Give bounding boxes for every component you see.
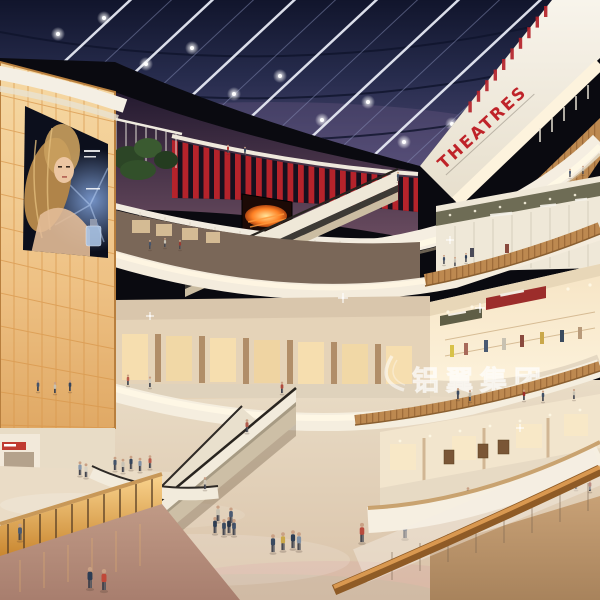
billboard-model-face xyxy=(54,157,74,183)
figure-shadow xyxy=(83,477,88,479)
figure-shadow xyxy=(147,468,152,470)
figure-shadow xyxy=(137,471,142,473)
figure-shadow xyxy=(221,535,227,538)
figure-shadow xyxy=(120,472,125,474)
level2-left-corridor xyxy=(115,296,430,400)
figure-shadow xyxy=(226,533,232,536)
figure-shadow xyxy=(148,388,152,390)
figure-shadow xyxy=(163,248,167,249)
figure-shadow xyxy=(289,548,296,551)
figure-shadow xyxy=(86,588,94,591)
small-shop xyxy=(0,434,40,470)
figure-shadow xyxy=(581,175,584,176)
figure-shadow xyxy=(396,182,400,183)
figure-shadow xyxy=(279,550,286,553)
mall-atrium-rendering: THEATRES xyxy=(0,0,600,600)
figure-shadow xyxy=(126,386,130,388)
figure-shadow xyxy=(468,402,472,404)
figure-shadow xyxy=(68,392,72,394)
figure-shadow xyxy=(203,490,208,492)
figure-shadow xyxy=(178,250,182,251)
figure-shadow xyxy=(53,394,57,396)
figure-shadow xyxy=(100,590,108,593)
figure-shadow xyxy=(36,392,40,394)
figure-shadow xyxy=(243,156,246,157)
figure-shadow xyxy=(17,540,23,543)
figure-shadow xyxy=(77,475,82,477)
figure-shadow xyxy=(280,394,285,396)
figure-shadow xyxy=(148,250,152,251)
figure-shadow xyxy=(442,265,446,266)
figure-shadow xyxy=(568,178,571,179)
figure-shadow xyxy=(128,469,133,471)
figure-shadow xyxy=(572,400,576,402)
figure-shadow xyxy=(541,402,545,404)
figure-shadow xyxy=(228,523,234,525)
figure-shadow xyxy=(453,267,457,268)
figure-shadow xyxy=(226,154,229,155)
figure-shadow xyxy=(456,400,460,402)
figure-shadow xyxy=(522,401,526,403)
figure-shadow xyxy=(244,432,249,434)
figure-shadow xyxy=(295,550,302,553)
scene-canvas: THEATRES xyxy=(0,0,600,600)
figure-shadow xyxy=(358,542,366,545)
figure-shadow xyxy=(269,552,276,555)
figure-shadow xyxy=(215,521,221,523)
figure-shadow xyxy=(212,533,218,536)
figure-shadow xyxy=(112,470,117,472)
figure-shadow xyxy=(464,263,468,264)
figure-shadow xyxy=(231,535,237,538)
